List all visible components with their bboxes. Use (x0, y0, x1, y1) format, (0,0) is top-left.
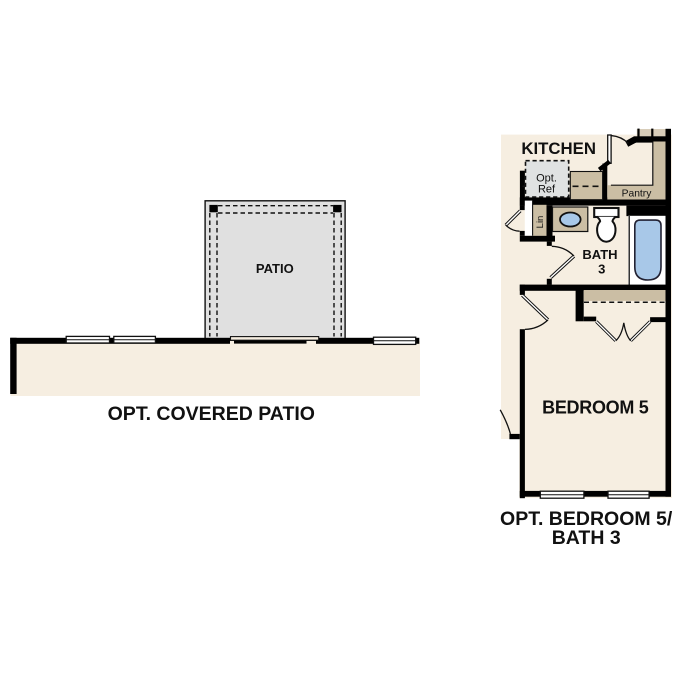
svg-text:BATH 3: BATH 3 (552, 527, 621, 549)
svg-text:Pantry: Pantry (622, 189, 653, 200)
svg-text:BEDROOM 5: BEDROOM 5 (542, 398, 649, 418)
svg-text:KITCHEN: KITCHEN (521, 139, 596, 158)
svg-text:Ref: Ref (538, 184, 556, 196)
svg-text:OPT. COVERED PATIO: OPT. COVERED PATIO (108, 403, 315, 425)
svg-text:PATIO: PATIO (256, 261, 294, 276)
svg-text:BATH: BATH (582, 247, 617, 262)
svg-text:3: 3 (598, 262, 605, 277)
svg-text:Lin: Lin (535, 216, 546, 229)
